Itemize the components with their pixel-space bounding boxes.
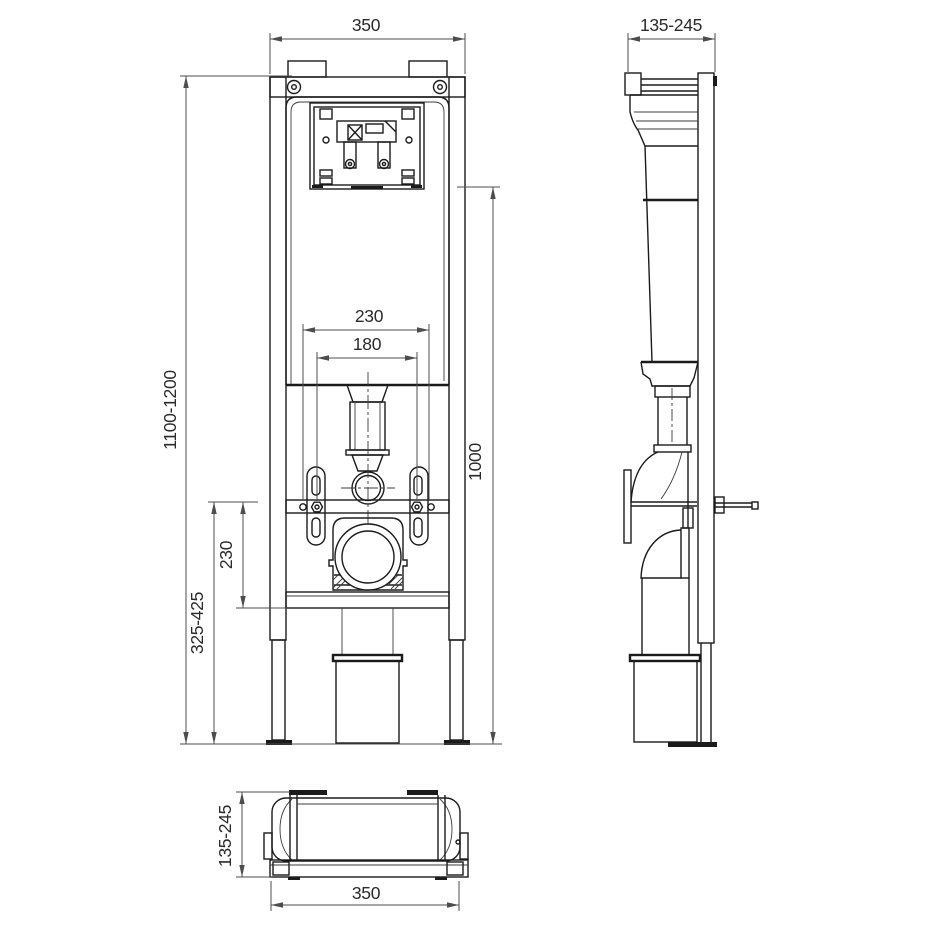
dim-label-frame-height: 1100-1200 [160, 370, 180, 450]
outlet-bend [329, 518, 407, 590]
side-cistern [630, 79, 698, 386]
dim-plan-width: 350 [271, 881, 459, 911]
plan-tab-left [289, 790, 327, 795]
plan-frame-bar [270, 860, 468, 880]
dim-label-outlet-offset: 230 [216, 540, 236, 569]
plan-view [264, 790, 468, 880]
hex-nut-right [412, 502, 423, 512]
side-outlet-bend [641, 528, 689, 655]
dim-label-stud-spacing-outer: 230 [355, 306, 384, 326]
rod-tip [752, 502, 758, 509]
installation-frame-drawing: 350 135-245 1100-1200 325-425 [0, 0, 928, 928]
flush-mechanism [320, 109, 414, 184]
hex-nut-left [312, 502, 323, 512]
side-frame-rail [625, 73, 717, 747]
dim-plan-depth: 135-245 [215, 792, 290, 877]
dim-label-plan-depth: 135-245 [215, 805, 235, 867]
dim-side-depth: 135-245 [628, 15, 715, 72]
dim-label-outlet-height: 325-425 [187, 592, 207, 654]
dim-label-plan-width: 350 [352, 883, 381, 903]
flush-pipe [341, 372, 395, 527]
dimension-annotations: 350 135-245 1100-1200 325-425 [160, 15, 715, 911]
rail-clip [713, 76, 717, 86]
plan-bracket-right [460, 833, 468, 859]
outer-stud-right [428, 504, 434, 510]
plan-tab-right [407, 790, 438, 795]
dim-label-cistern-height: 1000 [465, 443, 485, 481]
outer-stud-left [300, 504, 306, 510]
dim-outlet-height: 325-425 [187, 502, 258, 744]
dim-outlet-offset: 230 [216, 502, 287, 608]
dim-front-width: 350 [270, 15, 465, 74]
side-hanger-tab [625, 73, 641, 95]
dim-label-side-depth: 135-245 [640, 15, 702, 35]
side-flush-pipe [631, 386, 693, 528]
rod-nut [715, 497, 724, 513]
dim-label-stud-spacing-inner: 180 [353, 334, 382, 354]
side-outlet-box [630, 655, 700, 742]
plan-bracket-left [264, 833, 272, 859]
plan-cistern-body [264, 790, 468, 861]
front-view [266, 61, 470, 745]
lower-crossbar [286, 592, 449, 655]
side-foot [668, 742, 717, 747]
outlet-box [333, 655, 402, 743]
fixing-rod [714, 497, 758, 513]
dim-label-front-width: 350 [352, 15, 381, 35]
technical-drawing-page: 350 135-245 1100-1200 325-425 [0, 0, 928, 928]
side-view [624, 73, 758, 747]
